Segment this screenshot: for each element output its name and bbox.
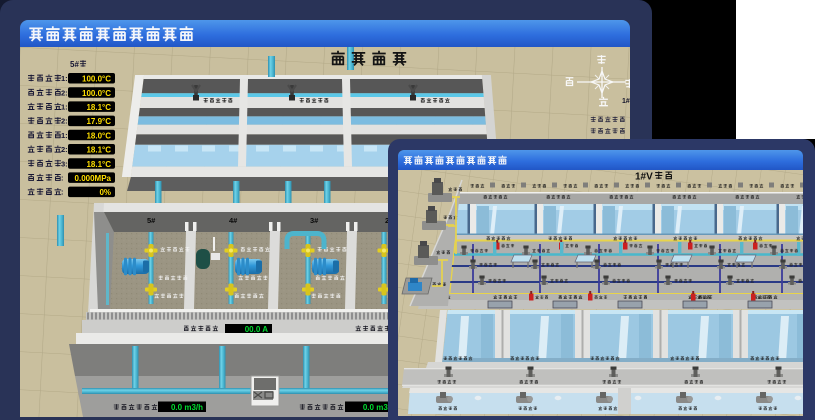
svg-text:18.0°C: 18.0°C bbox=[86, 131, 111, 140]
svg-text:100.0°C: 100.0°C bbox=[82, 75, 111, 84]
svg-text:5#: 5# bbox=[70, 60, 79, 69]
svg-text:1#V: 1#V bbox=[635, 172, 653, 183]
svg-text:0%: 0% bbox=[99, 188, 111, 197]
svg-text:18.1°C: 18.1°C bbox=[86, 160, 111, 169]
svg-text::: : bbox=[61, 174, 64, 183]
svg-text:4#: 4# bbox=[229, 216, 238, 225]
svg-text:1#: 1# bbox=[622, 98, 630, 105]
svg-text:18.1°C: 18.1°C bbox=[86, 103, 111, 112]
svg-text::: : bbox=[61, 188, 64, 197]
svg-text:0.0 m3/: 0.0 m3/ bbox=[363, 403, 391, 412]
svg-text:1:: 1: bbox=[61, 74, 68, 83]
svg-text:100.0°C: 100.0°C bbox=[82, 89, 111, 98]
svg-text:0.000MPa: 0.000MPa bbox=[75, 174, 112, 183]
svg-text:0.0 m3/h: 0.0 m3/h bbox=[171, 403, 203, 412]
svg-text:2:: 2: bbox=[61, 117, 68, 126]
svg-text:5#: 5# bbox=[147, 216, 156, 225]
svg-text:1:: 1: bbox=[61, 103, 68, 112]
svg-text:2:: 2: bbox=[61, 145, 68, 154]
svg-text:17.9°C: 17.9°C bbox=[86, 117, 111, 126]
svg-text:1:: 1: bbox=[61, 131, 68, 140]
svg-text:3:: 3: bbox=[61, 159, 68, 168]
svg-text:2:: 2: bbox=[61, 88, 68, 97]
svg-text:18.1°C: 18.1°C bbox=[86, 146, 111, 155]
svg-text:3#: 3# bbox=[310, 216, 319, 225]
svg-text:00.0 A: 00.0 A bbox=[245, 325, 268, 334]
